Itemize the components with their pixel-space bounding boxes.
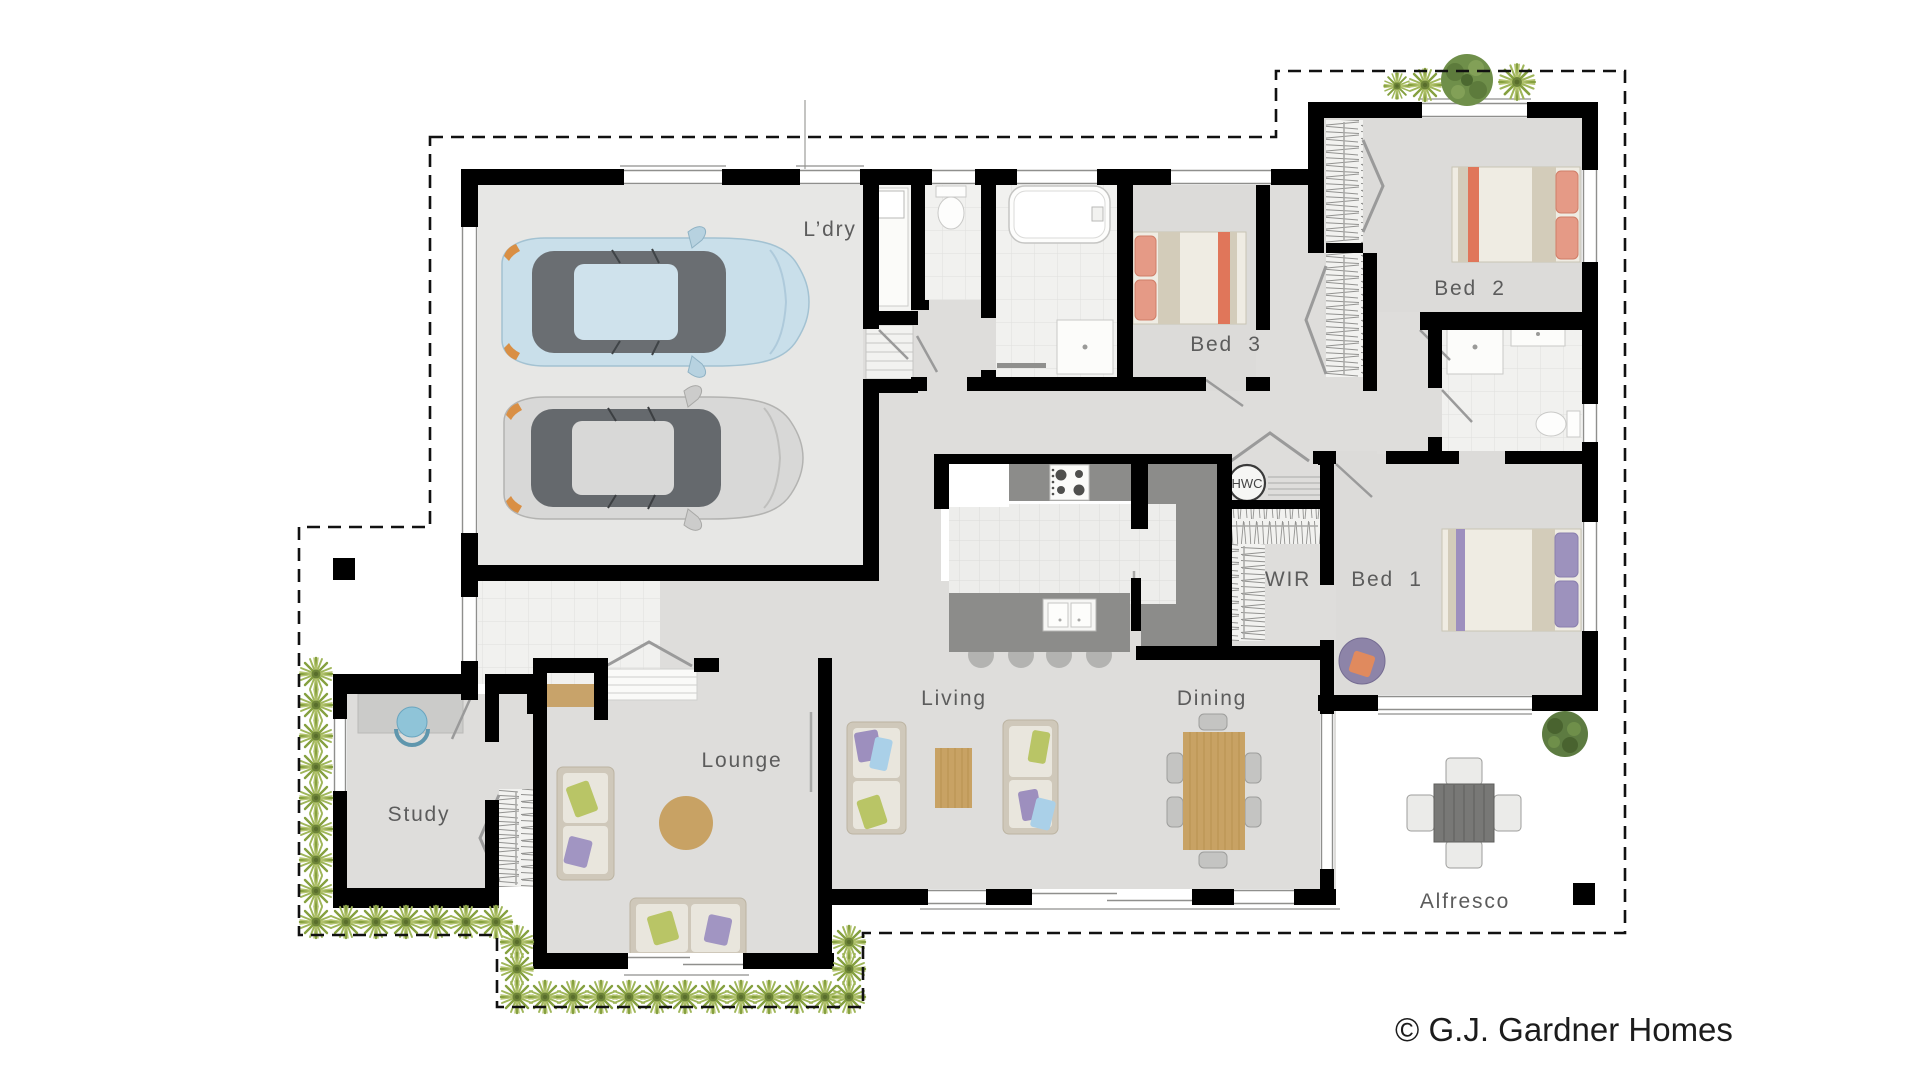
svg-text:Living: Living xyxy=(921,687,987,710)
svg-text:Study: Study xyxy=(388,803,451,826)
svg-text:Bed 3: Bed 3 xyxy=(1190,333,1262,356)
svg-text:Dining: Dining xyxy=(1177,687,1247,710)
svg-text:L’dry: L’dry xyxy=(803,218,856,241)
svg-text:WIR: WIR xyxy=(1265,568,1311,591)
svg-text:Bed 2: Bed 2 xyxy=(1434,277,1506,300)
svg-text:© G.J. Gardner Homes: © G.J. Gardner Homes xyxy=(1395,1011,1733,1048)
svg-text:Alfresco: Alfresco xyxy=(1420,890,1510,913)
svg-text:Bed 1: Bed 1 xyxy=(1351,568,1423,591)
svg-text:HWC: HWC xyxy=(1231,476,1262,491)
svg-text:Lounge: Lounge xyxy=(702,749,783,772)
